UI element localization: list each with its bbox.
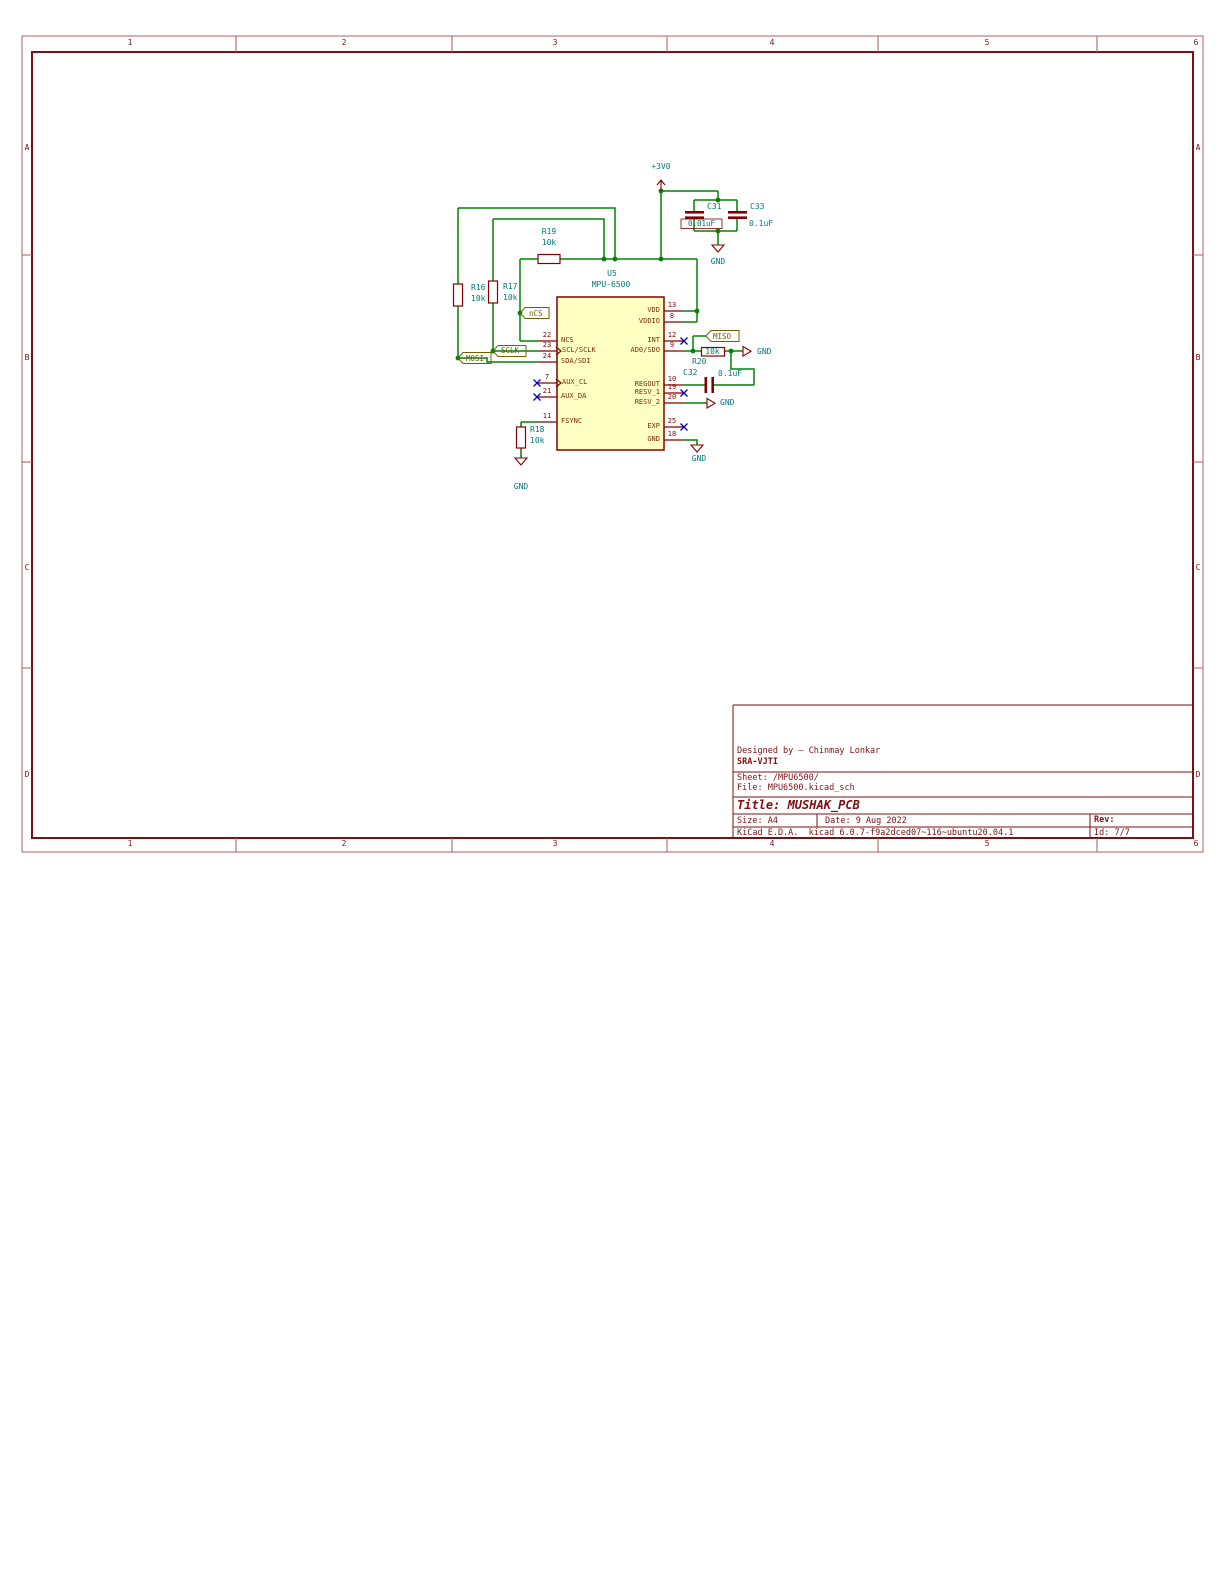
pin-name-resv2: RESV_2 <box>600 399 660 406</box>
pin-name-fsync: FSYNC <box>561 418 582 425</box>
c33-ref: C33 <box>750 203 764 211</box>
resistor-r17 <box>489 281 498 303</box>
pin-num-13: 13 <box>661 302 683 309</box>
frame-col-5-bottom: 5 <box>975 840 999 848</box>
r17-ref: R17 <box>503 283 517 291</box>
r20-ref: R20 <box>692 358 706 366</box>
titleblock-rev: Rev: <box>1094 816 1114 825</box>
frame-col-4-top: 4 <box>760 39 784 47</box>
frame-row-d-left: D <box>21 771 33 779</box>
title-block-lines <box>733 705 1193 838</box>
pin-num-20: 20 <box>661 394 683 401</box>
pin-num-11: 11 <box>536 413 558 420</box>
resistor-r18 <box>517 427 526 448</box>
frame-col-1-bottom: 1 <box>118 840 142 848</box>
gnd-text-pin18: GND <box>683 455 715 463</box>
pin-num-25: 25 <box>661 418 683 425</box>
pin-num-10: 10 <box>661 376 683 383</box>
titleblock-org: SRA-VJTI <box>737 758 778 767</box>
resistor-r19 <box>538 255 560 264</box>
pin-num-7: 7 <box>536 374 558 381</box>
gnd-text-resv2: GND <box>720 399 734 407</box>
pin-name-sda-sdi: SDA/SDI <box>561 358 591 365</box>
r18-value: 10k <box>530 437 544 445</box>
r17-value: 10k <box>503 294 517 302</box>
gnd-text-r20: GND <box>757 348 771 356</box>
gnd-icon-r18 <box>515 458 527 465</box>
frame-col-6-bottom: 6 <box>1184 840 1208 848</box>
c31-value: 0.01uF <box>681 220 722 228</box>
frame-col-4-bottom: 4 <box>760 840 784 848</box>
titleblock-generator: KiCad E.D.A. kicad 6.0.7-f9a2dced07~116~… <box>737 829 1013 838</box>
pin-num-23: 23 <box>536 342 558 349</box>
r20-value: 10k <box>701 348 724 356</box>
titleblock-id: Id: 7/7 <box>1094 829 1130 838</box>
pin-num-22: 22 <box>536 332 558 339</box>
frame-col-5-top: 5 <box>975 39 999 47</box>
titleblock-size: Size: A4 <box>737 817 778 826</box>
frame-col-3-top: 3 <box>543 39 567 47</box>
pin-name-regout: REGOUT <box>600 381 660 388</box>
pin-name-aux-cl: AUX_CL <box>562 379 587 386</box>
pin-name-exp: EXP <box>600 423 660 430</box>
titleblock-designed-by: Designed by – Chinmay Lonkar <box>737 747 880 756</box>
pin-name-resv1: RESV_1 <box>600 389 660 396</box>
frame-row-a-right: A <box>1192 144 1204 152</box>
gnd-icon-caps <box>712 245 724 252</box>
r16-value: 10k <box>471 295 485 303</box>
c32-value: 0.1uF <box>718 370 742 378</box>
pin-num-21: 21 <box>536 388 558 395</box>
r19-ref: R19 <box>534 228 564 236</box>
frame-row-c-left: C <box>21 564 33 572</box>
gnd-icon-resv2 <box>707 399 715 409</box>
frame-row-b-right: B <box>1192 354 1204 362</box>
c33-value: 0.1uF <box>749 220 773 228</box>
frame-row-a-left: A <box>21 144 33 152</box>
global-label-ncs: nCS <box>529 310 543 318</box>
pin-name-aux-da: AUX_DA <box>561 393 586 400</box>
frame-row-c-right: C <box>1192 564 1204 572</box>
titleblock-title: Title: MUSHAK_PCB <box>737 799 860 811</box>
pin-num-19: 19 <box>661 384 683 391</box>
pin-name-ad0-sdo: AD0/SDO <box>600 347 660 354</box>
pin-name-vdd: VDD <box>600 307 660 314</box>
resistor-r16 <box>454 284 463 306</box>
frame-col-2-top: 2 <box>332 39 356 47</box>
c32-ref: C32 <box>683 369 697 377</box>
capacitor-c31 <box>685 211 704 214</box>
pin-num-24: 24 <box>536 353 558 360</box>
global-label-miso: MISO <box>713 333 731 341</box>
frame-col-1-top: 1 <box>118 39 142 47</box>
r16-ref: R16 <box>471 284 485 292</box>
gnd-text-r18: GND <box>505 483 537 491</box>
titleblock-sheet: Sheet: /MPU6500/ <box>737 774 819 783</box>
ic-value: MPU-6500 <box>581 281 641 289</box>
pin-name-scl-sclk: SCL/SCLK <box>562 347 596 354</box>
c31-ref: C31 <box>707 203 721 211</box>
pin-name-int: INT <box>600 337 660 344</box>
r18-ref: R18 <box>530 426 544 434</box>
gnd-text-caps: GND <box>702 258 734 266</box>
power-label-3v0: +3V0 <box>644 163 678 171</box>
ic-reference: U5 <box>597 270 627 278</box>
global-label-sclk: SCLK <box>501 347 519 355</box>
gnd-icon-pin18 <box>691 445 703 452</box>
pin-num-18: 18 <box>661 431 683 438</box>
frame-col-3-bottom: 3 <box>543 840 567 848</box>
pin-name-vddio: VDDIO <box>600 318 660 325</box>
capacitor-c32 <box>705 377 708 393</box>
r19-value: 10k <box>534 239 564 247</box>
schematic-sheet: 1 2 3 4 5 6 1 2 3 4 5 6 A B C D A B C D … <box>0 0 1225 1585</box>
pin-num-9: 9 <box>661 342 683 349</box>
frame-col-2-bottom: 2 <box>332 840 356 848</box>
pin-num-12: 12 <box>661 332 683 339</box>
frame-row-b-left: B <box>21 354 33 362</box>
titleblock-file: File: MPU6500.kicad_sch <box>737 784 855 793</box>
pin-name-ncs: NCS <box>561 337 574 344</box>
frame-col-6-top: 6 <box>1184 39 1208 47</box>
capacitor-c33 <box>728 211 747 214</box>
pin-num-8: 8 <box>661 313 683 320</box>
schematic-drawing-layer <box>0 0 1225 1585</box>
titleblock-date: Date: 9 Aug 2022 <box>825 817 907 826</box>
global-label-mosi: MOSI <box>466 355 484 363</box>
pin-name-gnd: GND <box>600 436 660 443</box>
power-3v0-icon <box>657 180 665 191</box>
frame-row-d-right: D <box>1192 771 1204 779</box>
gnd-icon-r20 <box>743 347 751 357</box>
